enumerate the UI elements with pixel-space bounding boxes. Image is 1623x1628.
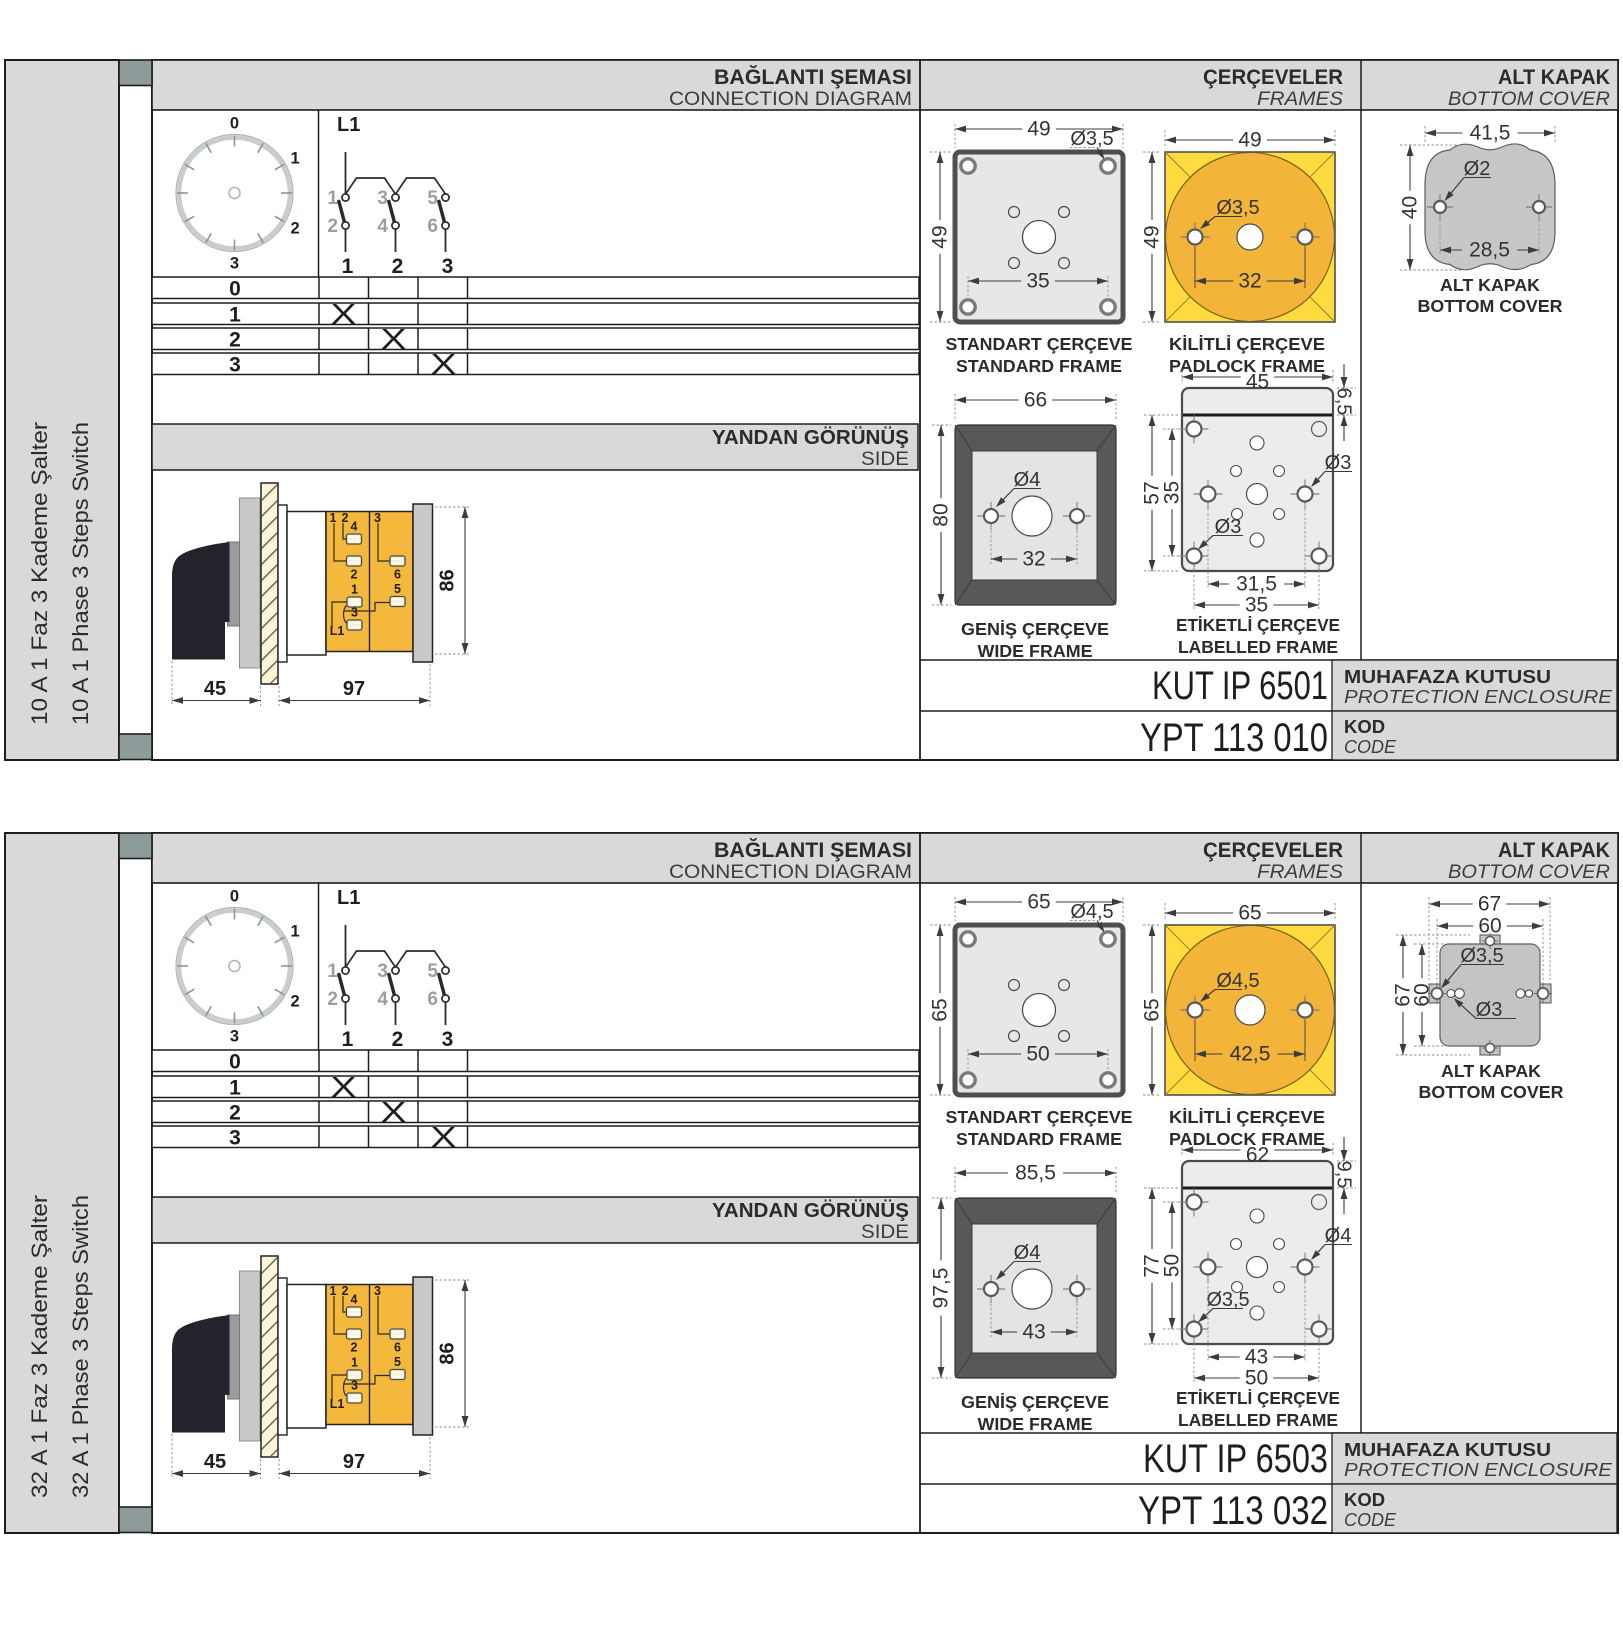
svg-text:60: 60 bbox=[1478, 915, 1501, 938]
svg-text:WIDE FRAME: WIDE FRAME bbox=[978, 1414, 1093, 1434]
svg-text:2: 2 bbox=[342, 1284, 349, 1298]
svg-text:X: X bbox=[431, 1122, 457, 1154]
svg-text:32: 32 bbox=[1022, 548, 1045, 571]
svg-text:L1: L1 bbox=[330, 1397, 345, 1411]
svg-text:CODE: CODE bbox=[1344, 737, 1397, 757]
svg-text:STANDARD FRAME: STANDARD FRAME bbox=[956, 356, 1122, 376]
svg-text:4: 4 bbox=[351, 1293, 358, 1307]
svg-text:1: 1 bbox=[330, 1284, 337, 1298]
svg-text:49: 49 bbox=[1238, 129, 1261, 152]
svg-text:40: 40 bbox=[1399, 196, 1422, 219]
svg-text:4: 4 bbox=[377, 989, 388, 1010]
svg-text:KİLİTLİ ÇERÇEVE: KİLİTLİ ÇERÇEVE bbox=[1169, 334, 1325, 354]
svg-text:1: 1 bbox=[229, 303, 241, 326]
svg-text:KUT IP 6501: KUT IP 6501 bbox=[1152, 664, 1328, 708]
svg-text:Ø3,5: Ø3,5 bbox=[1070, 128, 1113, 150]
svg-text:X: X bbox=[331, 299, 357, 331]
svg-text:YANDAN GÖRÜNÜŞ: YANDAN GÖRÜNÜŞ bbox=[712, 426, 909, 449]
svg-text:10 A 1 Phase 3 Steps Switch: 10 A 1 Phase 3 Steps Switch bbox=[68, 422, 93, 725]
svg-text:Ø3: Ø3 bbox=[1476, 999, 1503, 1021]
svg-text:32 A 1 Faz 3 Kademe Şalter: 32 A 1 Faz 3 Kademe Şalter bbox=[27, 1195, 52, 1498]
svg-text:4: 4 bbox=[377, 216, 388, 237]
svg-text:1: 1 bbox=[342, 255, 354, 278]
svg-text:50: 50 bbox=[1026, 1043, 1049, 1066]
svg-text:3: 3 bbox=[374, 511, 381, 525]
svg-text:32: 32 bbox=[1238, 270, 1261, 293]
svg-text:86: 86 bbox=[437, 569, 459, 591]
svg-text:BAĞLANTI ŞEMASI: BAĞLANTI ŞEMASI bbox=[714, 65, 912, 89]
svg-text:4: 4 bbox=[351, 520, 358, 534]
svg-text:6: 6 bbox=[394, 568, 401, 582]
svg-text:1: 1 bbox=[351, 1356, 358, 1370]
svg-text:LABELLED FRAME: LABELLED FRAME bbox=[1178, 637, 1338, 657]
svg-text:35: 35 bbox=[1245, 594, 1268, 617]
svg-text:BOTTOM COVER: BOTTOM COVER bbox=[1448, 88, 1610, 110]
svg-text:KİLİTLİ ÇERÇEVE: KİLİTLİ ÇERÇEVE bbox=[1169, 1107, 1325, 1127]
svg-text:YPT 113 032: YPT 113 032 bbox=[1138, 1489, 1328, 1533]
svg-text:31,5: 31,5 bbox=[1236, 573, 1277, 596]
svg-text:1: 1 bbox=[327, 188, 338, 209]
svg-text:3: 3 bbox=[442, 1028, 454, 1051]
svg-text:45: 45 bbox=[204, 1451, 226, 1473]
svg-text:Ø3: Ø3 bbox=[1325, 452, 1352, 474]
svg-text:Ø3,5: Ø3,5 bbox=[1216, 197, 1259, 219]
svg-text:2: 2 bbox=[291, 993, 300, 1011]
svg-text:86: 86 bbox=[437, 1342, 459, 1364]
svg-text:41,5: 41,5 bbox=[1470, 122, 1511, 145]
svg-text:1: 1 bbox=[327, 961, 338, 982]
svg-text:BAĞLANTI ŞEMASI: BAĞLANTI ŞEMASI bbox=[714, 838, 912, 862]
svg-text:45: 45 bbox=[1246, 371, 1269, 394]
svg-text:STANDART ÇERÇEVE: STANDART ÇERÇEVE bbox=[946, 1107, 1133, 1127]
svg-text:CONNECTION DIAGRAM: CONNECTION DIAGRAM bbox=[669, 88, 912, 110]
svg-text:MUHAFAZA KUTUSU: MUHAFAZA KUTUSU bbox=[1344, 666, 1551, 687]
svg-text:2: 2 bbox=[351, 1341, 358, 1355]
svg-text:ALT KAPAK: ALT KAPAK bbox=[1440, 275, 1540, 295]
svg-text:Ø3,5: Ø3,5 bbox=[1460, 945, 1503, 967]
svg-text:BOTTOM COVER: BOTTOM COVER bbox=[1418, 296, 1563, 316]
svg-text:L1: L1 bbox=[337, 114, 360, 136]
svg-text:YPT 113 010: YPT 113 010 bbox=[1140, 716, 1328, 760]
svg-text:BOTTOM COVER: BOTTOM COVER bbox=[1419, 1082, 1564, 1102]
svg-text:2: 2 bbox=[392, 1028, 404, 1051]
svg-text:5: 5 bbox=[427, 188, 438, 209]
svg-text:KUT IP 6503: KUT IP 6503 bbox=[1143, 1437, 1328, 1481]
svg-text:2: 2 bbox=[291, 220, 300, 238]
svg-text:SIDE: SIDE bbox=[861, 449, 909, 470]
svg-text:X: X bbox=[331, 1072, 357, 1104]
svg-text:3: 3 bbox=[351, 606, 358, 620]
svg-text:5: 5 bbox=[394, 582, 401, 596]
svg-text:3: 3 bbox=[230, 255, 239, 273]
svg-text:ALT KAPAK: ALT KAPAK bbox=[1441, 1061, 1541, 1081]
svg-text:5: 5 bbox=[427, 961, 438, 982]
svg-text:WIDE FRAME: WIDE FRAME bbox=[978, 641, 1093, 661]
svg-text:Ø4: Ø4 bbox=[1325, 1225, 1352, 1247]
svg-text:62: 62 bbox=[1246, 1144, 1269, 1167]
svg-text:49: 49 bbox=[1141, 225, 1164, 248]
svg-text:97,5: 97,5 bbox=[930, 1268, 953, 1309]
svg-text:ETİKETLİ ÇERÇEVE: ETİKETLİ ÇERÇEVE bbox=[1176, 615, 1340, 635]
svg-text:85,5: 85,5 bbox=[1015, 1162, 1056, 1185]
svg-text:66: 66 bbox=[1024, 389, 1047, 412]
svg-text:2: 2 bbox=[327, 989, 338, 1010]
svg-text:6: 6 bbox=[394, 1341, 401, 1355]
svg-text:2: 2 bbox=[351, 568, 358, 582]
svg-text:6,5: 6,5 bbox=[1333, 388, 1355, 416]
svg-text:28,5: 28,5 bbox=[1469, 239, 1510, 262]
svg-text:49: 49 bbox=[1027, 118, 1050, 141]
svg-text:50: 50 bbox=[1245, 1367, 1268, 1390]
svg-text:2: 2 bbox=[392, 255, 404, 278]
svg-text:3: 3 bbox=[442, 255, 454, 278]
svg-text:35: 35 bbox=[1026, 270, 1049, 293]
svg-text:0: 0 bbox=[230, 888, 239, 906]
svg-text:0: 0 bbox=[230, 115, 239, 133]
svg-text:5: 5 bbox=[394, 1355, 401, 1369]
svg-text:LABELLED FRAME: LABELLED FRAME bbox=[1178, 1410, 1338, 1430]
svg-text:3: 3 bbox=[377, 961, 388, 982]
svg-text:80: 80 bbox=[930, 503, 953, 526]
svg-text:35: 35 bbox=[1161, 481, 1184, 504]
svg-text:PROTECTION ENCLOSURE: PROTECTION ENCLOSURE bbox=[1344, 687, 1613, 707]
svg-text:ÇERÇEVELER: ÇERÇEVELER bbox=[1203, 839, 1343, 862]
svg-text:Ø4: Ø4 bbox=[1014, 1242, 1041, 1264]
svg-text:3: 3 bbox=[377, 188, 388, 209]
svg-text:GENİŞ ÇERÇEVE: GENİŞ ÇERÇEVE bbox=[961, 1392, 1109, 1412]
svg-text:FRAMES: FRAMES bbox=[1257, 861, 1343, 883]
svg-text:ALT KAPAK: ALT KAPAK bbox=[1498, 66, 1610, 89]
svg-text:3: 3 bbox=[230, 1028, 239, 1046]
svg-text:KOD: KOD bbox=[1344, 1489, 1385, 1510]
svg-text:3: 3 bbox=[374, 1284, 381, 1298]
svg-text:0: 0 bbox=[229, 277, 241, 300]
svg-text:ETİKETLİ ÇERÇEVE: ETİKETLİ ÇERÇEVE bbox=[1176, 1388, 1340, 1408]
svg-text:3: 3 bbox=[229, 1126, 241, 1149]
svg-text:Ø4,5: Ø4,5 bbox=[1216, 970, 1259, 992]
svg-text:43: 43 bbox=[1245, 1346, 1268, 1369]
svg-text:L1: L1 bbox=[337, 887, 360, 909]
svg-text:60: 60 bbox=[1411, 983, 1434, 1006]
svg-text:Ø4,5: Ø4,5 bbox=[1070, 901, 1113, 923]
svg-text:2: 2 bbox=[229, 328, 241, 351]
svg-text:50: 50 bbox=[1161, 1254, 1184, 1277]
svg-text:Ø3: Ø3 bbox=[1215, 516, 1242, 538]
svg-text:49: 49 bbox=[929, 225, 952, 248]
svg-text:1: 1 bbox=[291, 923, 300, 941]
svg-text:2: 2 bbox=[229, 1101, 241, 1124]
svg-text:43: 43 bbox=[1022, 1321, 1045, 1344]
svg-text:Ø3,5: Ø3,5 bbox=[1206, 1289, 1249, 1311]
svg-text:GENİŞ ÇERÇEVE: GENİŞ ÇERÇEVE bbox=[961, 619, 1109, 639]
svg-text:32 A 1 Phase 3 Steps Switch: 32 A 1 Phase 3 Steps Switch bbox=[68, 1195, 93, 1498]
svg-text:97: 97 bbox=[343, 678, 365, 700]
svg-text:3: 3 bbox=[229, 353, 241, 376]
svg-text:SIDE: SIDE bbox=[861, 1222, 909, 1243]
svg-text:65: 65 bbox=[1238, 902, 1261, 925]
svg-text:10 A 1 Faz 3 Kademe Şalter: 10 A 1 Faz 3 Kademe Şalter bbox=[27, 422, 52, 725]
svg-text:YANDAN GÖRÜNÜŞ: YANDAN GÖRÜNÜŞ bbox=[712, 1199, 909, 1222]
svg-text:KOD: KOD bbox=[1344, 716, 1385, 737]
svg-text:CONNECTION DIAGRAM: CONNECTION DIAGRAM bbox=[669, 861, 912, 883]
svg-text:ALT KAPAK: ALT KAPAK bbox=[1498, 839, 1610, 862]
svg-text:65: 65 bbox=[929, 998, 952, 1021]
svg-text:6: 6 bbox=[427, 989, 438, 1010]
svg-text:2: 2 bbox=[342, 511, 349, 525]
svg-text:PROTECTION ENCLOSURE: PROTECTION ENCLOSURE bbox=[1344, 1460, 1613, 1480]
svg-text:X: X bbox=[431, 349, 457, 381]
svg-text:97: 97 bbox=[343, 1451, 365, 1473]
svg-text:1: 1 bbox=[330, 511, 337, 525]
svg-text:FRAMES: FRAMES bbox=[1257, 88, 1343, 110]
svg-text:6: 6 bbox=[427, 216, 438, 237]
svg-text:BOTTOM COVER: BOTTOM COVER bbox=[1448, 861, 1610, 883]
svg-text:9,5: 9,5 bbox=[1333, 1161, 1355, 1189]
svg-text:3: 3 bbox=[351, 1379, 358, 1393]
svg-text:2: 2 bbox=[327, 216, 338, 237]
svg-text:L1: L1 bbox=[330, 624, 345, 638]
svg-text:1: 1 bbox=[342, 1028, 354, 1051]
svg-text:42,5: 42,5 bbox=[1230, 1043, 1271, 1066]
svg-text:Ø4: Ø4 bbox=[1014, 469, 1041, 491]
svg-text:Ø2: Ø2 bbox=[1464, 158, 1491, 180]
svg-text:X: X bbox=[381, 1097, 407, 1129]
svg-text:1: 1 bbox=[291, 150, 300, 168]
svg-text:1: 1 bbox=[351, 583, 358, 597]
svg-text:X: X bbox=[381, 324, 407, 356]
svg-text:STANDARD FRAME: STANDARD FRAME bbox=[956, 1129, 1122, 1149]
svg-text:0: 0 bbox=[229, 1050, 241, 1073]
svg-text:CODE: CODE bbox=[1344, 1510, 1397, 1530]
svg-text:67: 67 bbox=[1478, 893, 1501, 916]
svg-text:MUHAFAZA KUTUSU: MUHAFAZA KUTUSU bbox=[1344, 1439, 1551, 1460]
svg-text:1: 1 bbox=[229, 1076, 241, 1099]
svg-text:STANDART ÇERÇEVE: STANDART ÇERÇEVE bbox=[946, 334, 1133, 354]
svg-text:65: 65 bbox=[1027, 891, 1050, 914]
svg-text:45: 45 bbox=[204, 678, 226, 700]
svg-text:65: 65 bbox=[1141, 998, 1164, 1021]
svg-text:ÇERÇEVELER: ÇERÇEVELER bbox=[1203, 66, 1343, 89]
